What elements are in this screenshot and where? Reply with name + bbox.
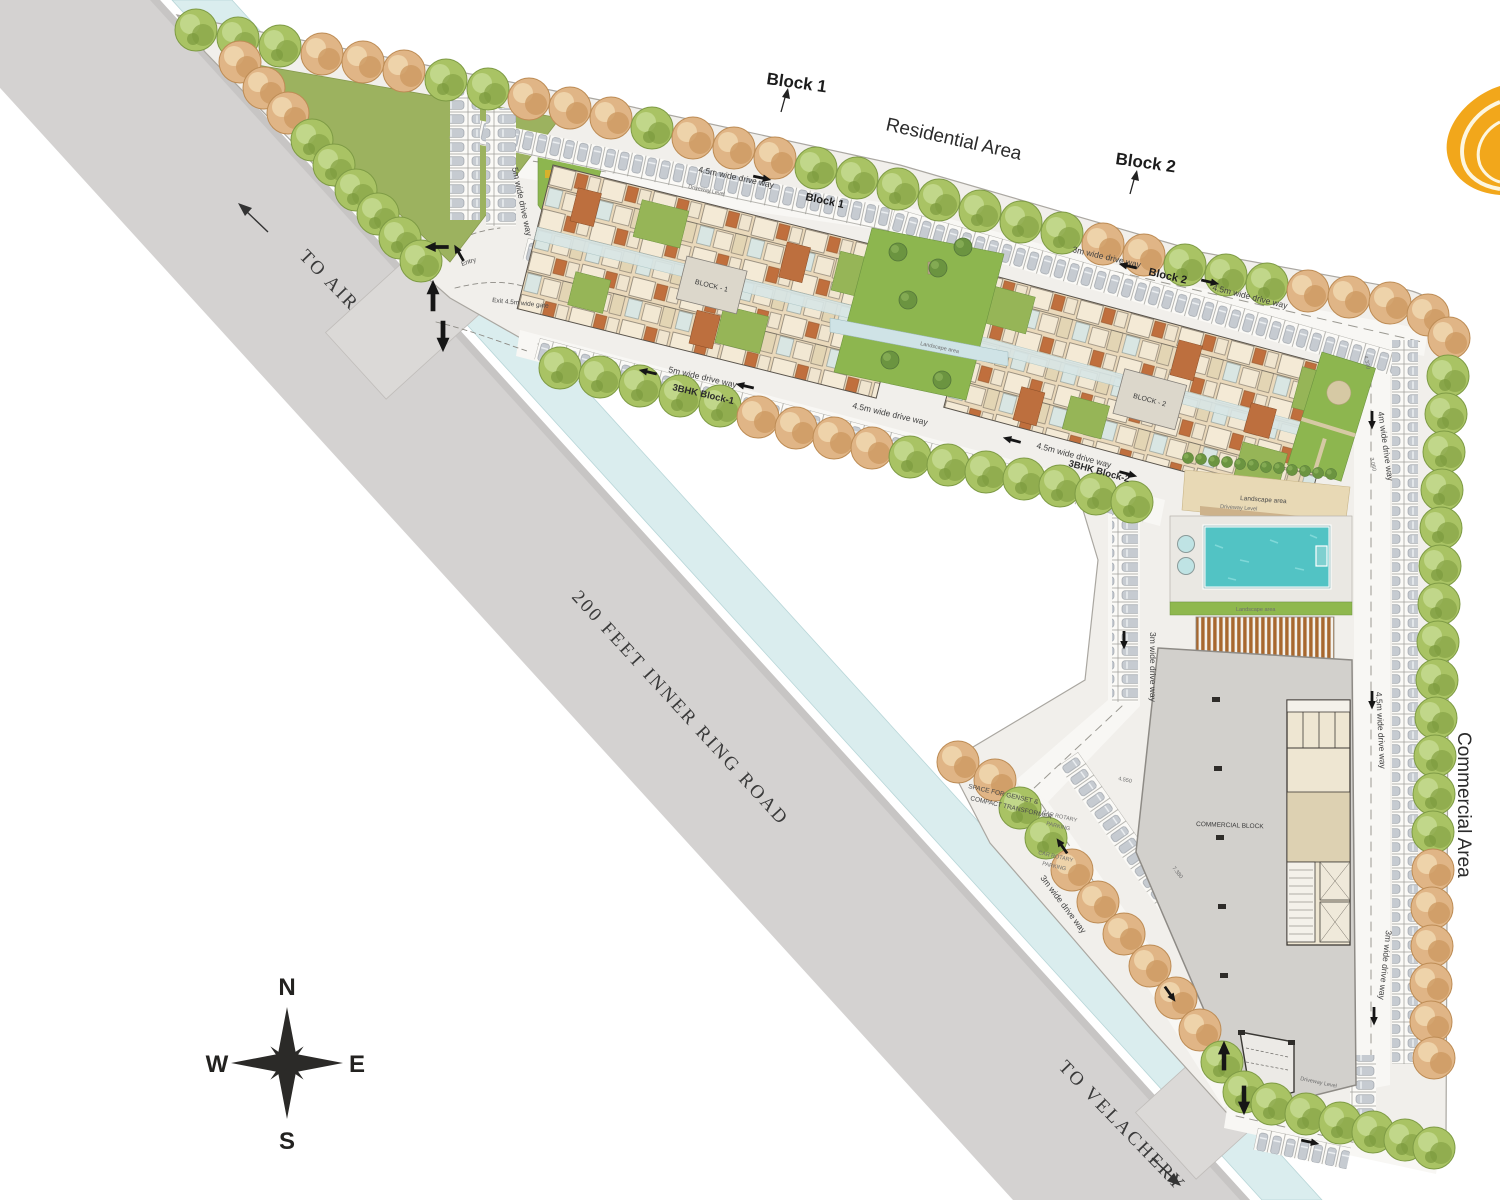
- compass-s: S: [279, 1128, 295, 1155]
- compass-rose: N S E W: [206, 974, 365, 1155]
- brand-logo: [1447, 86, 1500, 195]
- dw-label: 3m wide drive way: [1148, 632, 1158, 703]
- site-plan-page: 200 FEET INNER RING ROAD TO AIRPORT TO V…: [0, 0, 1500, 1200]
- block2-callout: Block 2: [1114, 149, 1177, 194]
- block1-callout-label: Block 1: [765, 69, 828, 96]
- compass-e: E: [349, 1051, 365, 1078]
- compass-n: N: [278, 974, 295, 1001]
- jacuzzi: [1178, 536, 1195, 553]
- green-strip-landscape-label: Landscape area: [1236, 607, 1276, 613]
- commercial-area-label: Commercial Area: [1453, 732, 1474, 878]
- block2-callout-label: Block 2: [1114, 149, 1177, 176]
- residential-area-label: Residential Area: [884, 114, 1024, 165]
- jacuzzi: [1178, 558, 1195, 575]
- site-plan-drawing: 200 FEET INNER RING ROAD TO AIRPORT TO V…: [0, 0, 1500, 1200]
- compass-w: W: [206, 1051, 229, 1078]
- block1-callout: Block 1: [765, 69, 828, 112]
- commercial-core: [1287, 700, 1350, 945]
